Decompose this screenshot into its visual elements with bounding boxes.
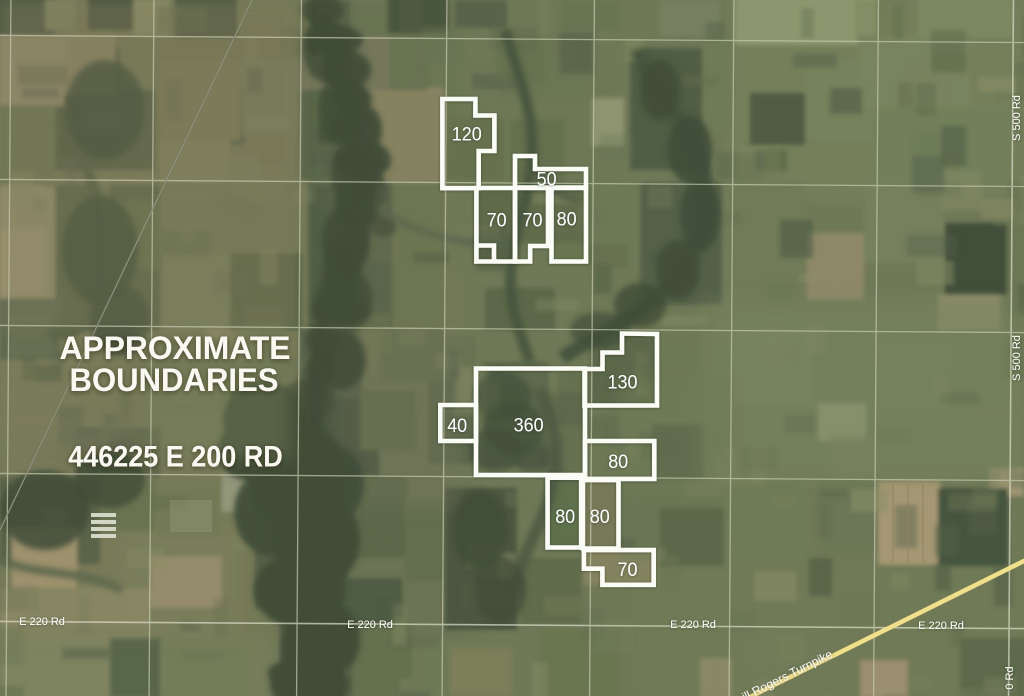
svg-text:80: 80	[608, 452, 628, 473]
svg-text:120: 120	[452, 124, 482, 145]
svg-text:E 220 Rd: E 220 Rd	[19, 616, 65, 628]
svg-text:S 500 Rd: S 500 Rd	[1011, 95, 1023, 141]
svg-text:40: 40	[447, 416, 467, 437]
svg-text:S 500 Rd: S 500 Rd	[1011, 335, 1023, 381]
svg-text:70: 70	[487, 210, 507, 231]
svg-text:70: 70	[523, 210, 543, 231]
svg-text:446225 E 200 RD: 446225 E 200 RD	[68, 441, 283, 474]
svg-text:APPROXIMATE: APPROXIMATE	[60, 330, 291, 366]
svg-text:80: 80	[590, 507, 610, 528]
svg-text:E 220 Rd: E 220 Rd	[670, 619, 716, 631]
svg-text:50: 50	[537, 170, 557, 191]
svg-text:0 Rd: 0 Rd	[1004, 666, 1016, 689]
svg-text:360: 360	[514, 416, 544, 437]
svg-text:E 220 Rd: E 220 Rd	[347, 619, 393, 631]
svg-text:70: 70	[618, 560, 638, 581]
svg-text:130: 130	[608, 372, 638, 393]
svg-text:80: 80	[555, 507, 575, 528]
svg-text:E 220 Rd: E 220 Rd	[918, 620, 964, 632]
svg-text:80: 80	[557, 210, 577, 231]
svg-text:BOUNDARIES: BOUNDARIES	[70, 362, 279, 398]
